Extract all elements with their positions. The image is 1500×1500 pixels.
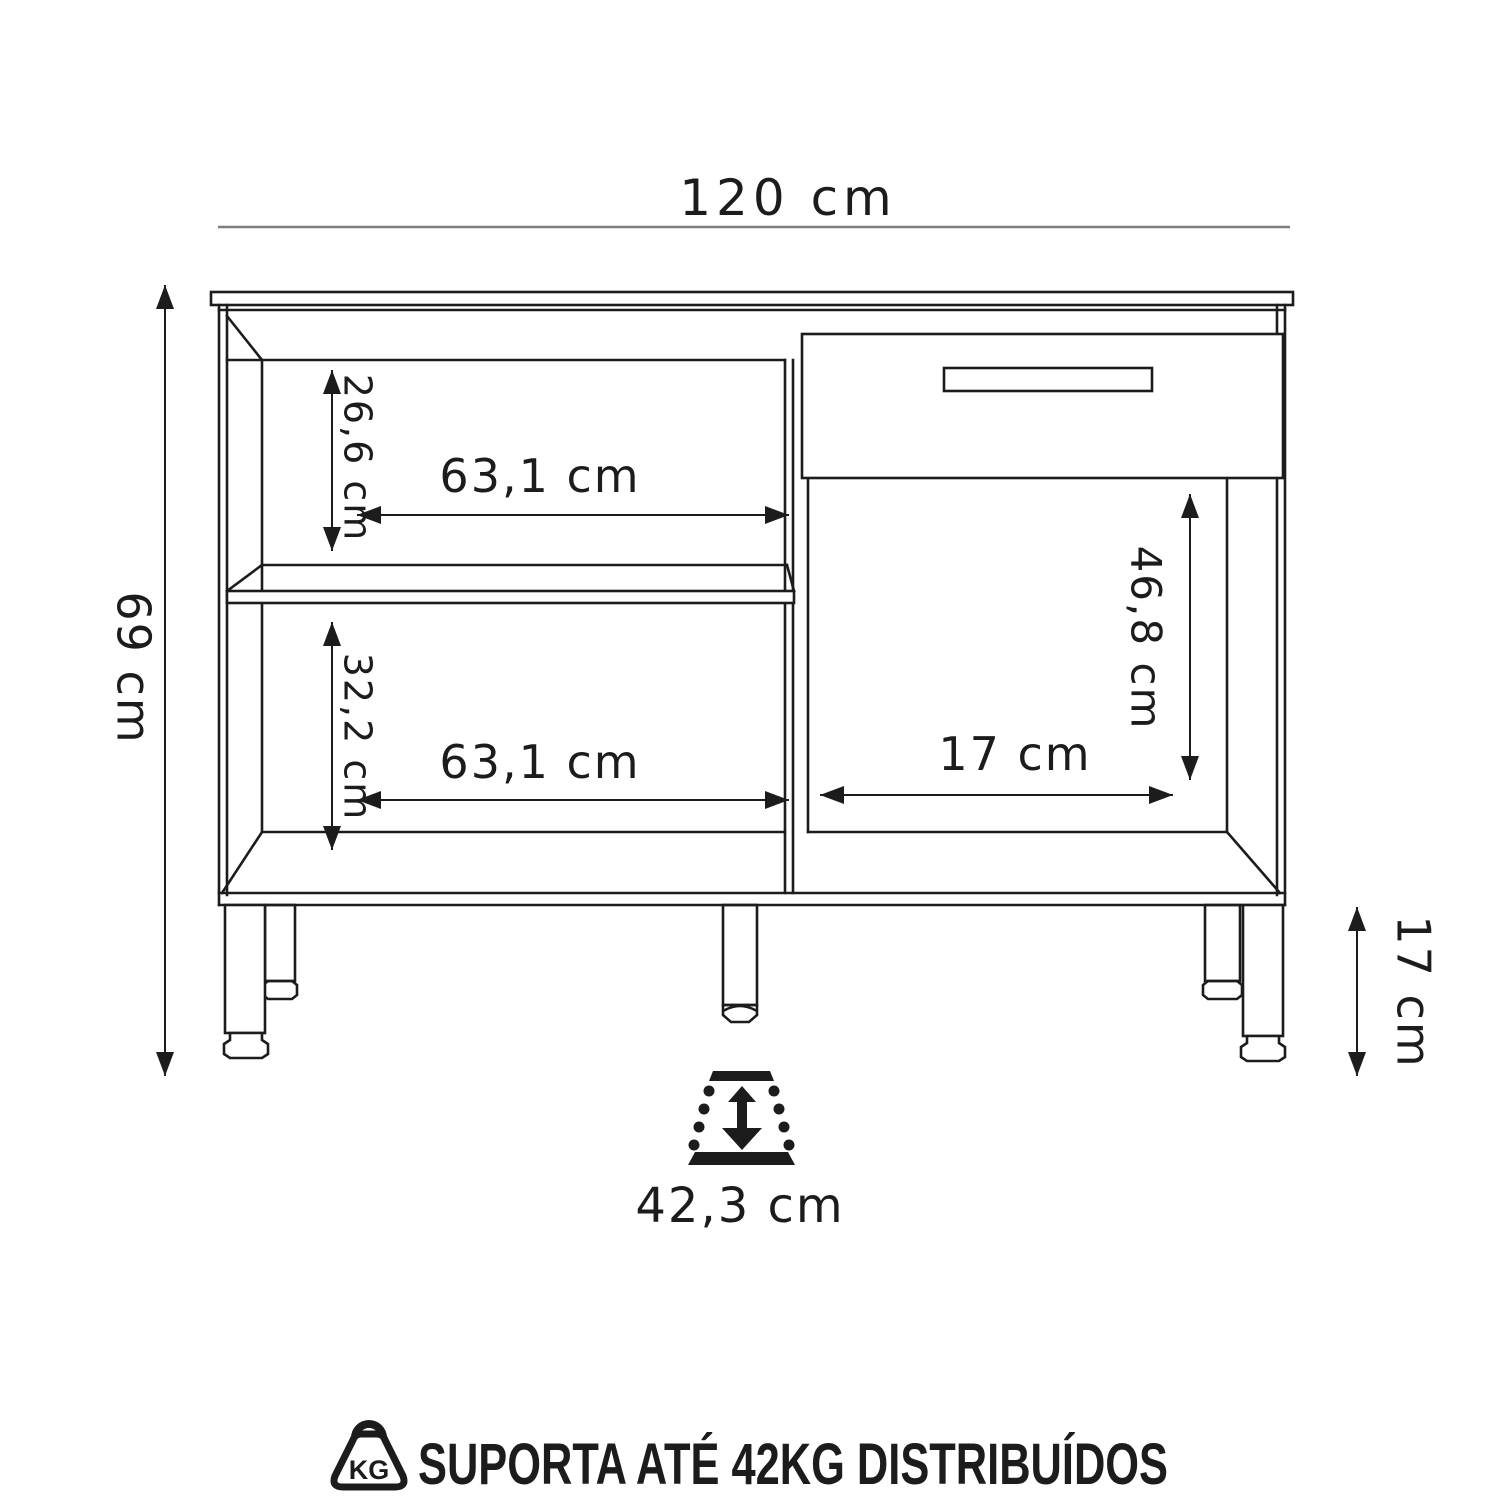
kg-weight-icon: KG	[334, 1424, 404, 1487]
left-side-panel	[219, 305, 262, 905]
diagram-canvas: 120 cm 69 cm 26,6 cm 63,1 cm 32,2 cm 63,…	[0, 0, 1500, 1500]
dim-upper-compartment-width: 63,1 cm	[357, 449, 789, 515]
furniture-dimension-diagram: 120 cm 69 cm 26,6 cm 63,1 cm 32,2 cm 63,…	[0, 0, 1500, 1500]
support-note: KG SUPORTA ATÉ 42KG DISTRIBUÍDOS	[334, 1424, 1168, 1497]
depth-arrow-icon	[688, 1071, 795, 1165]
bottom-panel	[219, 832, 1285, 905]
back-right-leg	[1203, 905, 1242, 999]
depth-indicator: 42,3 cm	[635, 1071, 844, 1234]
front-right-leg	[1241, 905, 1285, 1061]
center-leg	[723, 905, 757, 1022]
dim-total-width: 120 cm	[218, 169, 1290, 227]
support-note-label: SUPORTA ATÉ 42KG DISTRIBUÍDOS	[418, 1432, 1168, 1497]
dim-upper-compartment-height: 26,6 cm	[332, 370, 380, 551]
dim-right-compartment-height: 46,8 cm	[1122, 494, 1191, 780]
total-height-label: 69 cm	[107, 591, 161, 744]
middle-shelf	[227, 565, 794, 603]
dim-leg-height: 17 cm	[1357, 907, 1441, 1076]
total-width-label: 120 cm	[679, 169, 897, 227]
lower-compartment-height-label: 32,2 cm	[336, 653, 380, 822]
right-compartment-height-label: 46,8 cm	[1122, 546, 1171, 731]
dim-lower-compartment-height: 32,2 cm	[332, 622, 380, 850]
depth-label: 42,3 cm	[635, 1178, 844, 1234]
drawer	[802, 334, 1283, 478]
dim-lower-compartment-width: 63,1 cm	[357, 735, 789, 800]
dim-right-compartment-width: 17 cm	[820, 727, 1173, 795]
countertop	[211, 292, 1293, 305]
upper-compartment-height-label: 26,6 cm	[336, 374, 380, 543]
leg-height-label: 17 cm	[1387, 915, 1441, 1068]
back-left-leg	[263, 905, 297, 999]
front-left-leg	[224, 905, 268, 1058]
upper-compartment-width-label: 63,1 cm	[439, 449, 640, 503]
kg-icon-label: KG	[349, 1455, 390, 1485]
lower-compartment-width-label: 63,1 cm	[439, 735, 640, 789]
right-compartment-width-label: 17 cm	[938, 727, 1091, 781]
dim-total-height: 69 cm	[107, 285, 166, 1076]
drawer-front	[802, 334, 1283, 478]
